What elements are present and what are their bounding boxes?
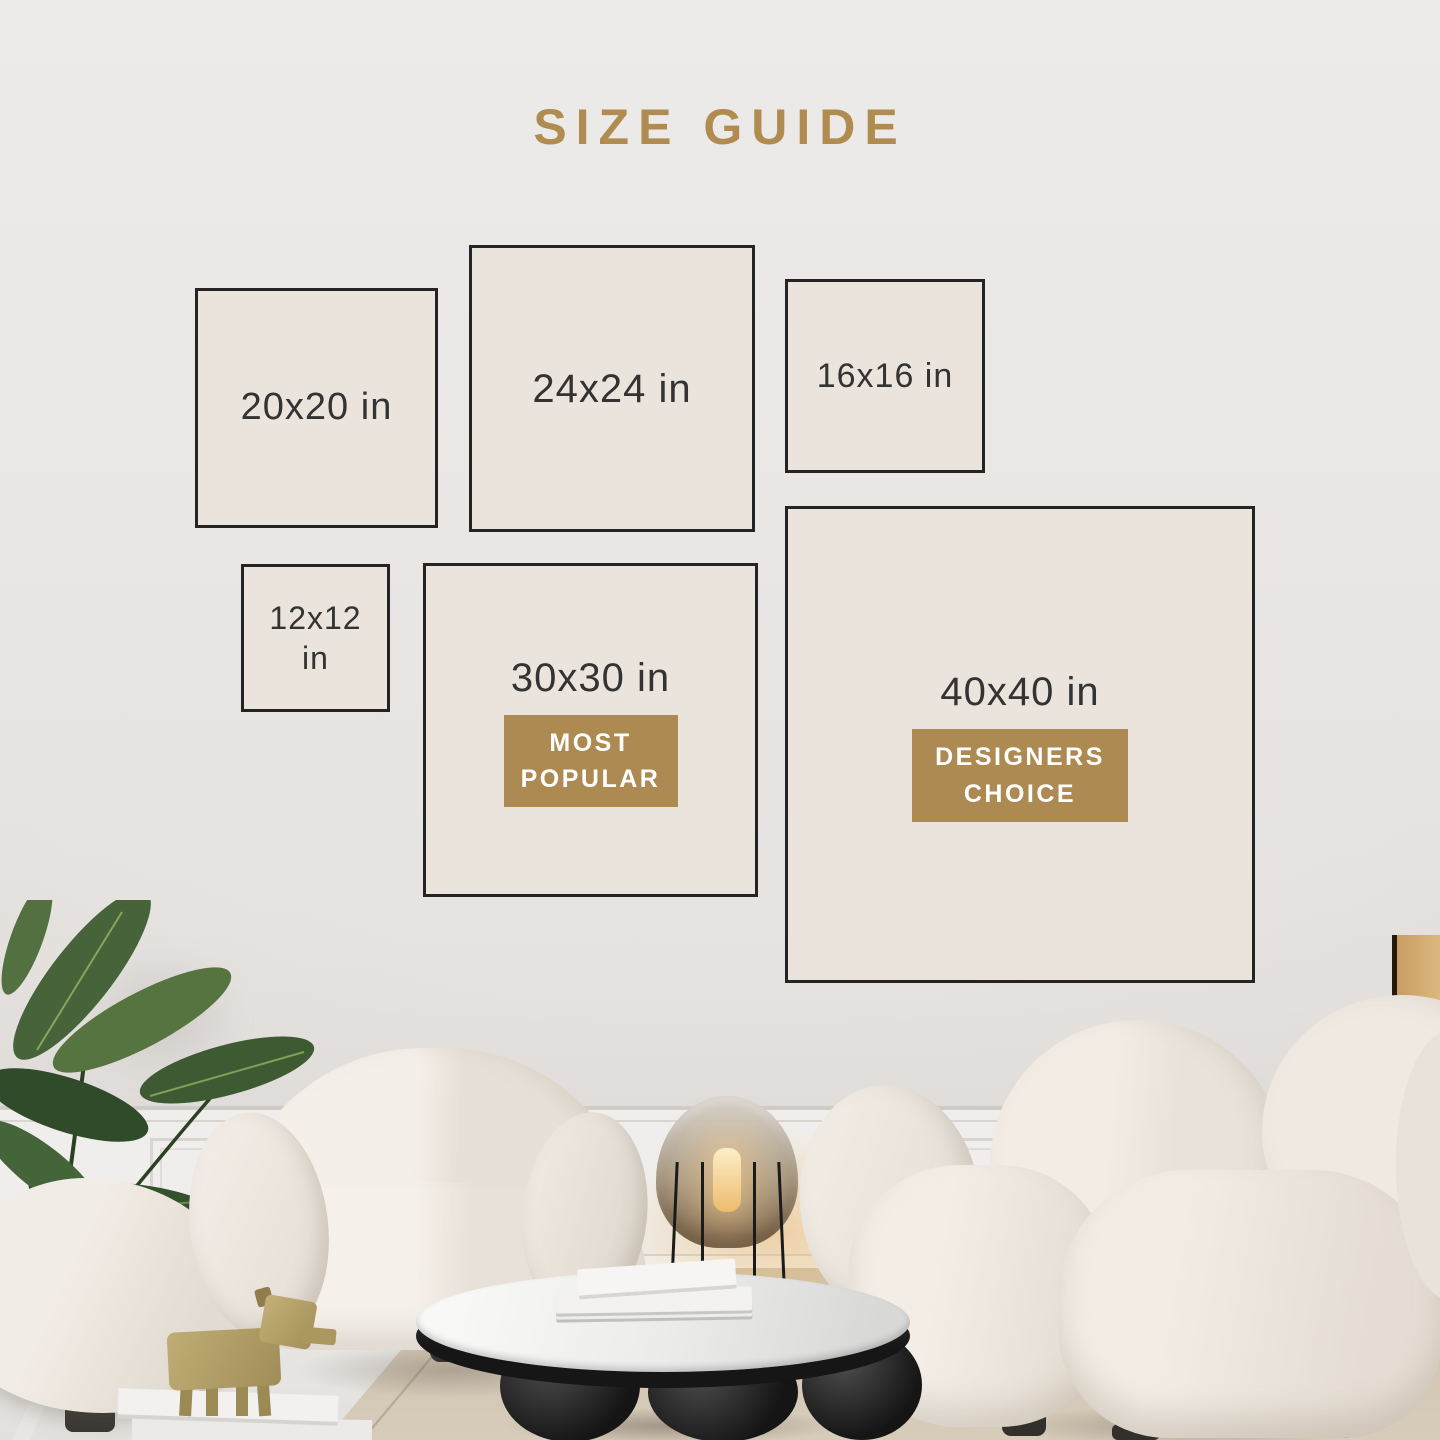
size-guide-title: SIZE GUIDE [0,98,1440,156]
size-box-16x16: 16x16 in [785,279,985,473]
size-label-30x30: 30x30 in [511,653,670,703]
size-box-40x40: 40x40 in DESIGNERS CHOICE [785,506,1255,983]
figurine-snout [301,1327,336,1346]
size-box-30x30: 30x30 in MOST POPULAR [423,563,758,897]
figurine-leg [257,1382,271,1417]
size-box-24x24: 24x24 in [469,245,755,532]
size-box-12x12: 12x12 in [241,564,390,712]
size-label-16x16: 16x16 in [817,355,954,398]
lamp-bulb [713,1148,741,1212]
size-guide-mockup: SIZE GUIDE 20x20 in 24x24 in 16x16 in 12… [0,0,1440,1440]
size-label-20x20: 20x20 in [241,384,393,432]
size-label-40x40: 40x40 in [940,667,1099,717]
most-popular-badge: MOST POPULAR [504,715,678,808]
size-label-24x24: 24x24 in [532,364,691,414]
designers-choice-badge: DESIGNERS CHOICE [912,729,1128,822]
sofa-seat-cushion [1058,1170,1440,1438]
size-label-12x12: 12x12 in [266,598,366,678]
size-box-20x20: 20x20 in [195,288,438,528]
